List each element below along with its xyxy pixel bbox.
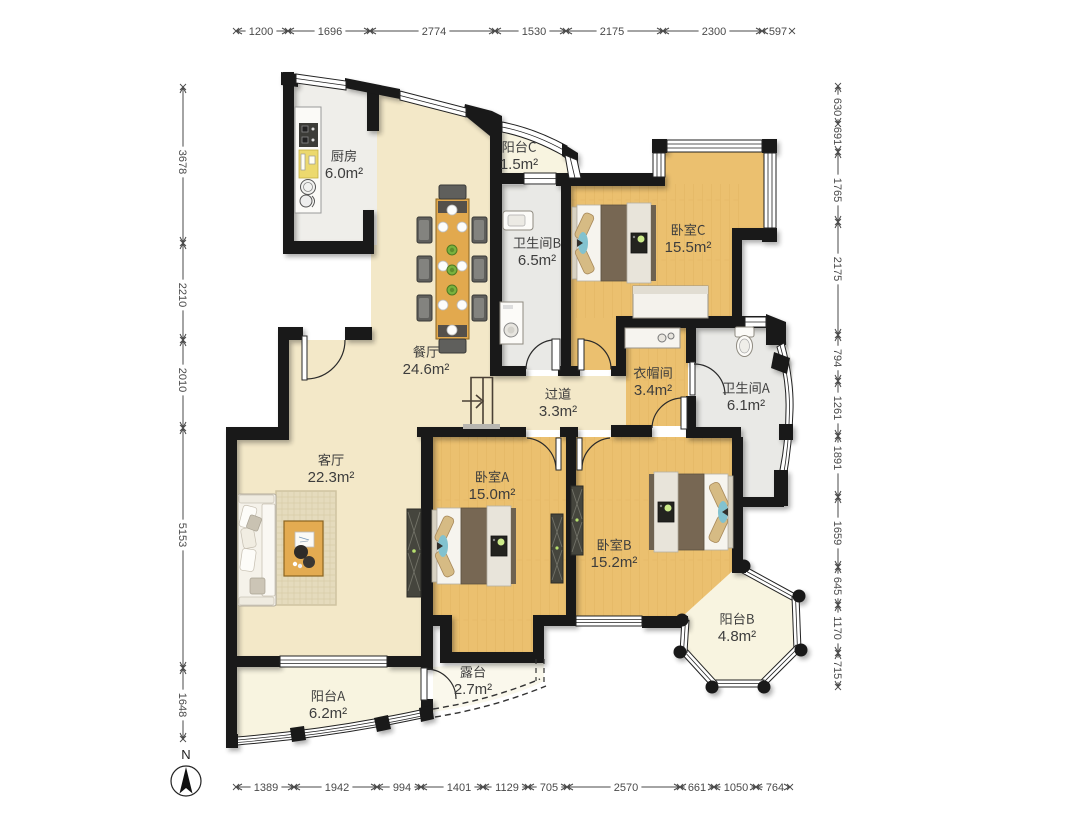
svg-text:2175: 2175 [600, 26, 624, 38]
svg-text:4.8m²: 4.8m² [718, 628, 756, 645]
svg-text:1648: 1648 [176, 693, 188, 717]
svg-text:24.6m²: 24.6m² [403, 361, 450, 378]
svg-text:691: 691 [831, 127, 843, 145]
svg-text:15.2m²: 15.2m² [591, 554, 638, 571]
svg-text:1.5m²: 1.5m² [500, 156, 538, 173]
svg-text:1659: 1659 [831, 521, 843, 545]
svg-text:2.7m²: 2.7m² [454, 681, 492, 698]
svg-text:3.3m²: 3.3m² [539, 403, 577, 420]
svg-text:6.0m²: 6.0m² [325, 165, 363, 182]
svg-text:715: 715 [831, 661, 843, 679]
svg-text:994: 994 [393, 782, 411, 794]
svg-text:1401: 1401 [447, 782, 471, 794]
svg-text:5153: 5153 [176, 523, 188, 547]
svg-text:1200: 1200 [249, 26, 273, 38]
svg-text:2570: 2570 [614, 782, 638, 794]
svg-text:6.1m²: 6.1m² [727, 397, 765, 414]
svg-text:1530: 1530 [522, 26, 546, 38]
svg-text:2210: 2210 [176, 283, 188, 307]
svg-text:1129: 1129 [495, 782, 519, 794]
svg-text:1050: 1050 [724, 782, 748, 794]
svg-text:3678: 3678 [176, 150, 188, 174]
svg-text:15.5m²: 15.5m² [665, 239, 712, 256]
svg-text:6.5m²: 6.5m² [518, 252, 556, 269]
svg-text:1891: 1891 [831, 446, 843, 470]
svg-text:2010: 2010 [176, 368, 188, 392]
svg-text:1389: 1389 [254, 782, 278, 794]
svg-text:1170: 1170 [831, 616, 843, 640]
svg-text:1261: 1261 [831, 396, 843, 420]
svg-text:597: 597 [769, 26, 787, 38]
svg-text:1696: 1696 [318, 26, 342, 38]
svg-text:630: 630 [831, 98, 843, 116]
svg-text:2300: 2300 [702, 26, 726, 38]
svg-text:22.3m²: 22.3m² [308, 469, 355, 486]
svg-text:661: 661 [688, 782, 706, 794]
svg-text:1765: 1765 [831, 178, 843, 202]
svg-text:6.2m²: 6.2m² [309, 705, 347, 722]
svg-text:794: 794 [831, 349, 843, 367]
svg-text:N: N [181, 747, 190, 762]
svg-text:3.4m²: 3.4m² [634, 382, 672, 399]
svg-text:2774: 2774 [422, 26, 446, 38]
svg-text:764: 764 [766, 782, 784, 794]
svg-text:2175: 2175 [831, 257, 843, 281]
svg-text:15.0m²: 15.0m² [469, 486, 516, 503]
svg-text:645: 645 [831, 577, 843, 595]
svg-text:1942: 1942 [325, 782, 349, 794]
svg-text:705: 705 [540, 782, 558, 794]
